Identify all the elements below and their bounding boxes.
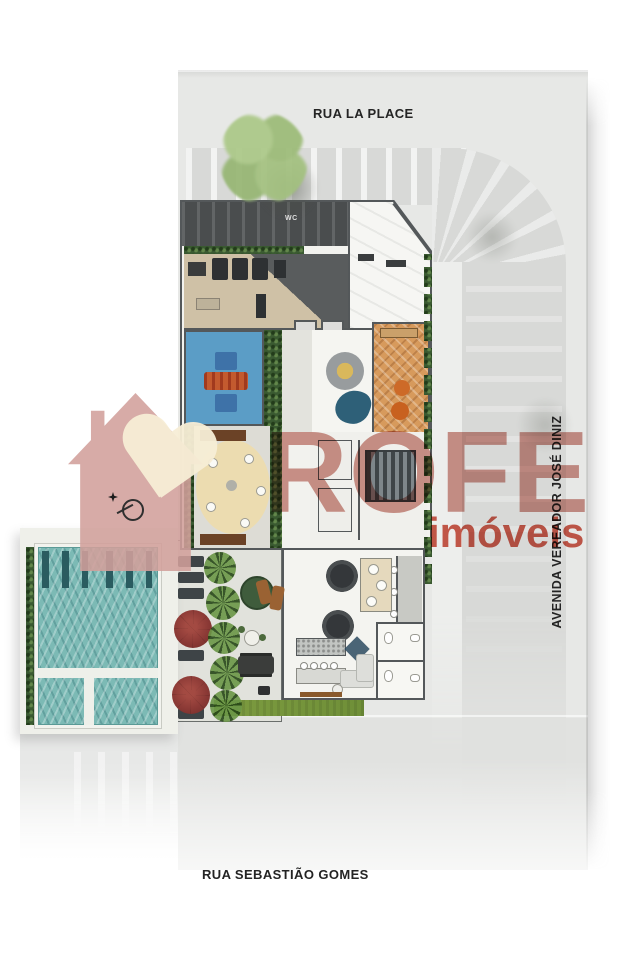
patio-table bbox=[226, 480, 237, 491]
pool-umbrella bbox=[172, 676, 210, 714]
counter-stool bbox=[300, 662, 308, 670]
lobby-reception-desk bbox=[358, 254, 374, 261]
palm-tree bbox=[206, 586, 240, 620]
sink-fixture bbox=[410, 674, 420, 682]
palm-tree bbox=[208, 622, 240, 654]
tree bbox=[120, 806, 200, 884]
deck-lounger bbox=[178, 588, 204, 599]
palm-tree bbox=[204, 552, 236, 584]
deck-lounger bbox=[178, 572, 204, 583]
play-structure-bottom bbox=[215, 394, 237, 412]
toilet-fixture bbox=[384, 632, 393, 644]
plan-background-top-edge bbox=[178, 70, 588, 78]
play-table bbox=[204, 372, 248, 390]
lobby-bench bbox=[386, 260, 406, 267]
reading-bench bbox=[380, 328, 418, 338]
tree bbox=[505, 756, 589, 838]
gym-equipment bbox=[212, 258, 228, 280]
buffet-plate bbox=[366, 596, 377, 607]
bbq-table bbox=[238, 656, 274, 674]
wc-divider-wall bbox=[376, 660, 423, 662]
tree bbox=[440, 182, 514, 258]
wood-bench bbox=[300, 692, 342, 697]
counter-stool bbox=[330, 662, 338, 670]
buffet-plate bbox=[368, 564, 379, 575]
compass-north-star bbox=[108, 492, 118, 502]
gym-equipment bbox=[252, 258, 268, 280]
buffet-plate bbox=[376, 580, 387, 591]
gym-equipment bbox=[232, 258, 248, 280]
counter-stool bbox=[320, 662, 328, 670]
compass-ring bbox=[122, 499, 144, 521]
round-rug bbox=[326, 352, 364, 390]
party-room bbox=[282, 548, 425, 700]
patio-chair bbox=[206, 502, 216, 512]
gym-hedge bbox=[184, 246, 304, 254]
kitchen-island bbox=[296, 638, 346, 656]
pool-divider bbox=[84, 668, 94, 725]
site-plan-image: WC bbox=[0, 0, 635, 960]
pool-divider bbox=[38, 668, 158, 678]
sofa-back bbox=[356, 654, 374, 682]
toilet-fixture bbox=[384, 670, 393, 682]
gym-weight-rack bbox=[188, 262, 206, 276]
north-compass-icon bbox=[104, 486, 152, 530]
palm-tree bbox=[210, 690, 242, 722]
gym-equipment bbox=[274, 260, 286, 278]
tree bbox=[330, 752, 418, 840]
pouf bbox=[394, 380, 410, 396]
gym-bench bbox=[196, 298, 220, 310]
watermark-tagline: imóveis bbox=[428, 512, 584, 554]
play-structure-top bbox=[215, 352, 237, 370]
street-label-top: RUA LA PLACE bbox=[313, 106, 414, 121]
tree bbox=[420, 788, 512, 876]
tree bbox=[220, 112, 308, 204]
page-edge-shadow bbox=[586, 78, 616, 870]
gym-treadmill bbox=[256, 294, 266, 318]
grill bbox=[258, 686, 270, 695]
pool-hedge bbox=[26, 547, 34, 725]
tree bbox=[430, 296, 514, 382]
terrace-chair bbox=[238, 626, 245, 633]
tree bbox=[232, 776, 328, 868]
pool-umbrella bbox=[174, 610, 212, 648]
kitchen-counter bbox=[296, 668, 346, 684]
patio-chair bbox=[240, 518, 250, 528]
deck-lounger bbox=[178, 650, 204, 661]
patio-chair bbox=[244, 454, 254, 464]
street-label-bottom: RUA SEBASTIÃO GOMES bbox=[202, 867, 369, 882]
terrace-chair bbox=[259, 634, 266, 641]
sink-fixture bbox=[410, 634, 420, 642]
counter-stool bbox=[310, 662, 318, 670]
dining-table bbox=[324, 558, 360, 594]
terrace-table bbox=[244, 630, 260, 646]
